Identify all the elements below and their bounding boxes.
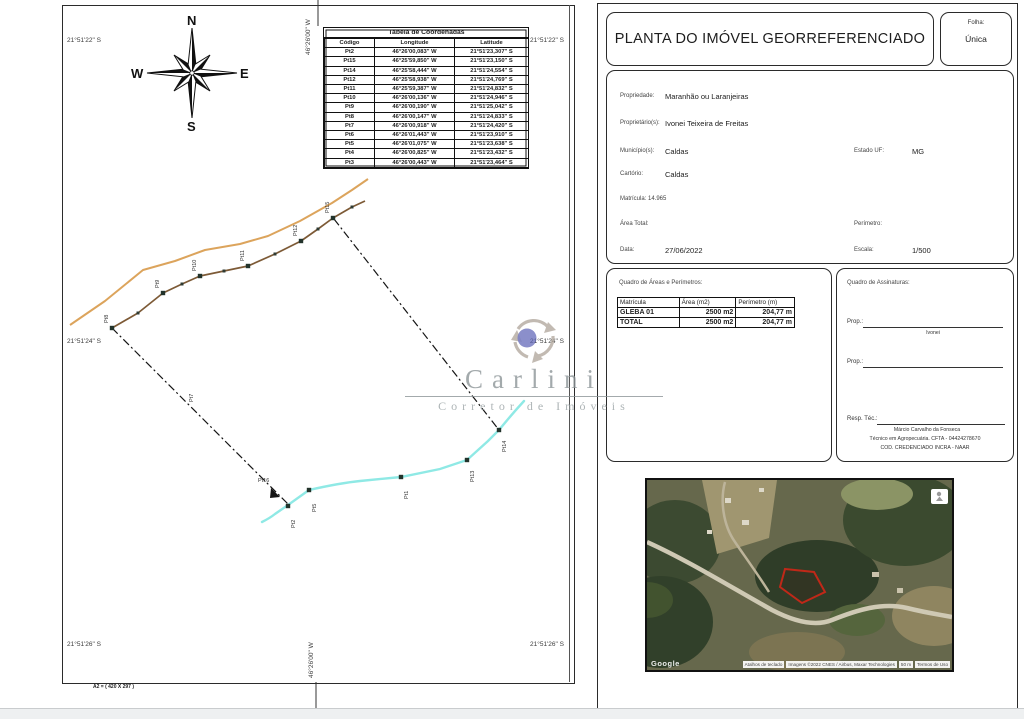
- coord-table-row: Pt1246°25'58,938" W21°51'24,769" S: [325, 75, 529, 84]
- resp-tec-signature-line: [877, 424, 1005, 425]
- compass-west-label: W: [131, 66, 143, 81]
- coord-cell: Pt15: [325, 57, 375, 66]
- coord-cell: 21°51'23,910" S: [455, 131, 529, 140]
- coord-cell: Pt8: [325, 112, 375, 121]
- folha-value: Única: [941, 34, 1011, 44]
- coord-table-row: Pt846°26'00,147" W21°51'24,833" S: [325, 112, 529, 121]
- coord-cell: 46°26'00,190" W: [375, 103, 455, 112]
- areas-col-header: Área (m2): [679, 298, 736, 308]
- prop2-signature-line: [863, 367, 1003, 368]
- coord-cell: 46°26'00,147" W: [375, 112, 455, 121]
- sheet-number-box: Folha: Única: [940, 12, 1012, 66]
- coord-cell: Pt2: [325, 48, 375, 57]
- coord-cell: Pt6: [325, 131, 375, 140]
- prop1-signature-line: [863, 327, 1003, 328]
- coord-cell: 21°51'24,769" S: [455, 75, 529, 84]
- areas-cell: 204,77 m: [736, 318, 795, 328]
- sheet-edge-line: [569, 5, 570, 682]
- areas-cell: TOTAL: [618, 318, 680, 328]
- area-total-label: Área Total:: [620, 221, 649, 227]
- municipio-value: Caldas: [665, 147, 688, 156]
- coord-cell: 46°25'59,850" W: [375, 57, 455, 66]
- areas-col-header: Matrícula: [618, 298, 680, 308]
- coord-cell: Pt10: [325, 94, 375, 103]
- coord-table-row: Pt1446°25'58,444" W21°51'24,554" S: [325, 66, 529, 75]
- propriedade-value: Maranhão ou Laranjeiras: [665, 92, 748, 101]
- coord-cell: Pt11: [325, 85, 375, 94]
- map-control-icon: [931, 489, 948, 504]
- property-info-box: Propriedade: Maranhão ou Laranjeiras Pro…: [606, 70, 1014, 264]
- areas-table-row: GLEBA 012500 m2204,77 m: [618, 308, 795, 318]
- municipio-label: Município(s):: [620, 148, 654, 154]
- resp-tec-incra: COD. CREDENCIADO INCRA - NAAR: [841, 445, 1009, 451]
- areas-perimeters-box: Quadro de Áreas e Perímetros: MatrículaÁ…: [606, 268, 832, 462]
- coord-table-row: Pt1546°25'59,850" W21°51'23,150" S: [325, 57, 529, 66]
- escala-label: Escala:: [854, 247, 874, 253]
- coord-cell: 46°26'01,075" W: [375, 140, 455, 149]
- sheet-format-note: A2 = ( 420 X 297 ): [93, 684, 134, 690]
- satellite-imagery: [647, 480, 952, 670]
- proprietario-label: Proprietário(s):: [620, 120, 660, 126]
- page-bottom-strip: [0, 708, 1024, 719]
- coord-table-row: Pt546°26'01,075" W21°51'23,638" S: [325, 140, 529, 149]
- coord-cell: 21°51'25,042" S: [455, 103, 529, 112]
- lat-label-top-right: 21°51'22" S: [530, 37, 564, 44]
- prop1-name: Ivonei: [863, 330, 1003, 336]
- coord-cell: 46°25'58,938" W: [375, 75, 455, 84]
- perimetro-label: Perímetro:: [854, 221, 882, 227]
- prop1-label: Prop.:: [847, 319, 863, 325]
- lat-label-bottom-left: 21°51'26" S: [67, 641, 101, 648]
- data-value: 27/06/2022: [665, 246, 703, 255]
- signatures-box-title: Quadro de Assinaturas:: [847, 280, 910, 286]
- coord-cell: Pt7: [325, 121, 375, 130]
- coord-cell: 46°26'00,918" W: [375, 121, 455, 130]
- coord-cell: Pt14: [325, 66, 375, 75]
- coord-cell: 46°26'00,443" W: [375, 158, 455, 167]
- attribution-item: Imagens ©2022 CNES / Airbus, Maxar Techn…: [786, 661, 896, 668]
- cartorio-label: Cartório:: [620, 171, 643, 177]
- lat-label-mid-right: 21°51'24" S: [530, 338, 564, 345]
- coord-cell: 46°26'00,825" W: [375, 149, 455, 158]
- lat-label-mid-left: 21°51'24" S: [67, 338, 101, 345]
- coord-cell: 21°51'23,307" S: [455, 48, 529, 57]
- coord-cell: 21°51'23,464" S: [455, 158, 529, 167]
- coord-cell: Pt9: [325, 103, 375, 112]
- attribution-item: 50 m: [899, 661, 913, 668]
- coord-cell: Pt5: [325, 140, 375, 149]
- coord-col-header: Código: [325, 39, 375, 48]
- coordinates-table-header: CódigoLongitudeLatitude: [325, 39, 529, 48]
- coord-table-row: Pt446°26'00,825" W21°51'23,432" S: [325, 149, 529, 158]
- coord-cell: 46°25'58,444" W: [375, 66, 455, 75]
- areas-table: MatrículaÁrea (m2)Perímetro (m) GLEBA 01…: [617, 297, 795, 328]
- proprietario-value: Ivonei Teixeira de Freitas: [665, 119, 748, 128]
- areas-cell: 2500 m2: [679, 308, 736, 318]
- google-logo: Google: [651, 659, 680, 668]
- lon-label-top: 46°26'00" W: [305, 19, 312, 55]
- estado-label: Estado UF:: [854, 148, 884, 154]
- coord-cell: 21°51'24,946" S: [455, 94, 529, 103]
- coord-table-row: Pt746°26'00,918" W21°51'24,420" S: [325, 121, 529, 130]
- scanned-property-plan: Pt8Pt9Pt10Pt11Pt12Pt15Pt2Pt5Pt1Pt13Pt14P…: [0, 0, 1024, 719]
- propriedade-label: Propriedade:: [620, 93, 654, 99]
- prop2-label: Prop.:: [847, 359, 863, 365]
- coord-table-row: Pt246°26'00,083" W21°51'23,307" S: [325, 48, 529, 57]
- cartorio-value: Caldas: [665, 170, 688, 179]
- matricula-label: Matrícula: 14.965: [620, 196, 666, 202]
- satellite-attribution-bar: Atalhos de tecladoImagens ©2022 CNES / A…: [743, 661, 950, 668]
- resp-tec-label: Resp. Téc.:: [847, 416, 878, 422]
- attribution-item: Atalhos de teclado: [743, 661, 785, 668]
- estado-value: MG: [912, 147, 924, 156]
- coord-cell: 46°26'00,136" W: [375, 94, 455, 103]
- folha-label: Folha:: [941, 20, 1011, 26]
- compass-north-label: N: [187, 13, 196, 28]
- resp-tec-name: Márcio Carvalho da Fonseca: [851, 427, 1003, 433]
- coord-col-header: Longitude: [375, 39, 455, 48]
- plan-title: PLANTA DO IMÓVEL GEORREFERENCIADO: [615, 31, 925, 47]
- coord-cell: 46°26'01,443" W: [375, 131, 455, 140]
- data-label: Data:: [620, 247, 634, 253]
- coordinates-table-title: Tabela de Coordenadas: [324, 28, 529, 38]
- coord-table-row: Pt946°26'00,190" W21°51'25,042" S: [325, 103, 529, 112]
- areas-cell: 204,77 m: [736, 308, 795, 318]
- resp-tec-title: Técnico em Agropecuária. CFTA - 04424278…: [841, 436, 1009, 442]
- signatures-box: Quadro de Assinaturas: Prop.: Ivonei Pro…: [836, 268, 1014, 462]
- coordinates-table: Tabela de Coordenadas CódigoLongitudeLat…: [323, 27, 529, 169]
- coord-cell: 21°51'24,554" S: [455, 66, 529, 75]
- compass-south-label: S: [187, 119, 196, 134]
- areas-cell: 2500 m2: [679, 318, 736, 328]
- coord-cell: Pt4: [325, 149, 375, 158]
- coord-cell: 21°51'24,420" S: [455, 121, 529, 130]
- plan-title-box: PLANTA DO IMÓVEL GEORREFERENCIADO: [606, 12, 934, 66]
- coord-table-row: Pt1146°25'59,387" W21°51'24,832" S: [325, 85, 529, 94]
- lat-label-bottom-right: 21°51'26" S: [530, 641, 564, 648]
- coord-cell: Pt12: [325, 75, 375, 84]
- lat-label-top-left: 21°51'22" S: [67, 37, 101, 44]
- coord-table-row: Pt646°26'01,443" W21°51'23,910" S: [325, 131, 529, 140]
- coord-cell: Pt3: [325, 158, 375, 167]
- coord-col-header: Latitude: [455, 39, 529, 48]
- coord-cell: 21°51'23,638" S: [455, 140, 529, 149]
- areas-table-row: TOTAL2500 m2204,77 m: [618, 318, 795, 328]
- attribution-item: Termos de Uso: [915, 661, 950, 668]
- coord-cell: 46°26'00,083" W: [375, 48, 455, 57]
- coord-cell: 46°25'59,387" W: [375, 85, 455, 94]
- compass-east-label: E: [240, 66, 249, 81]
- coord-cell: 21°51'24,832" S: [455, 85, 529, 94]
- areas-col-header: Perímetro (m): [736, 298, 795, 308]
- areas-box-title: Quadro de Áreas e Perímetros:: [619, 280, 702, 286]
- coord-cell: 21°51'24,833" S: [455, 112, 529, 121]
- coord-cell: 21°51'23,432" S: [455, 149, 529, 158]
- coord-table-row: Pt1046°26'00,136" W21°51'24,946" S: [325, 94, 529, 103]
- coord-cell: 21°51'23,150" S: [455, 57, 529, 66]
- satellite-location-image: Google Atalhos de tecladoImagens ©2022 C…: [645, 478, 954, 672]
- areas-cell: GLEBA 01: [618, 308, 680, 318]
- lon-label-bottom: 46°26'00" W: [308, 642, 315, 678]
- coord-table-row: Pt346°26'00,443" W21°51'23,464" S: [325, 158, 529, 167]
- escala-value: 1/500: [912, 246, 931, 255]
